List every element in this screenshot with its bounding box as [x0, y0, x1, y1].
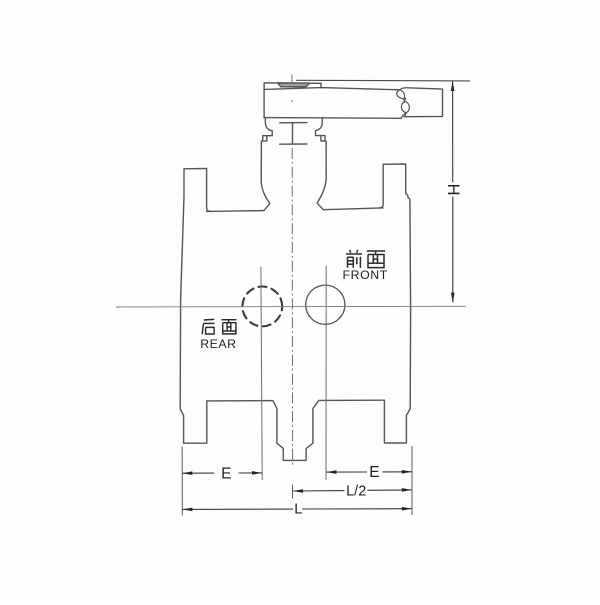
svg-text:E: E [221, 465, 231, 482]
svg-text:L: L [294, 501, 302, 517]
svg-text:L/2: L/2 [346, 483, 366, 499]
svg-text:E: E [369, 464, 379, 481]
svg-text:REAR: REAR [200, 337, 236, 351]
svg-text:FRONT: FRONT [343, 268, 388, 282]
svg-text:H: H [444, 184, 462, 196]
